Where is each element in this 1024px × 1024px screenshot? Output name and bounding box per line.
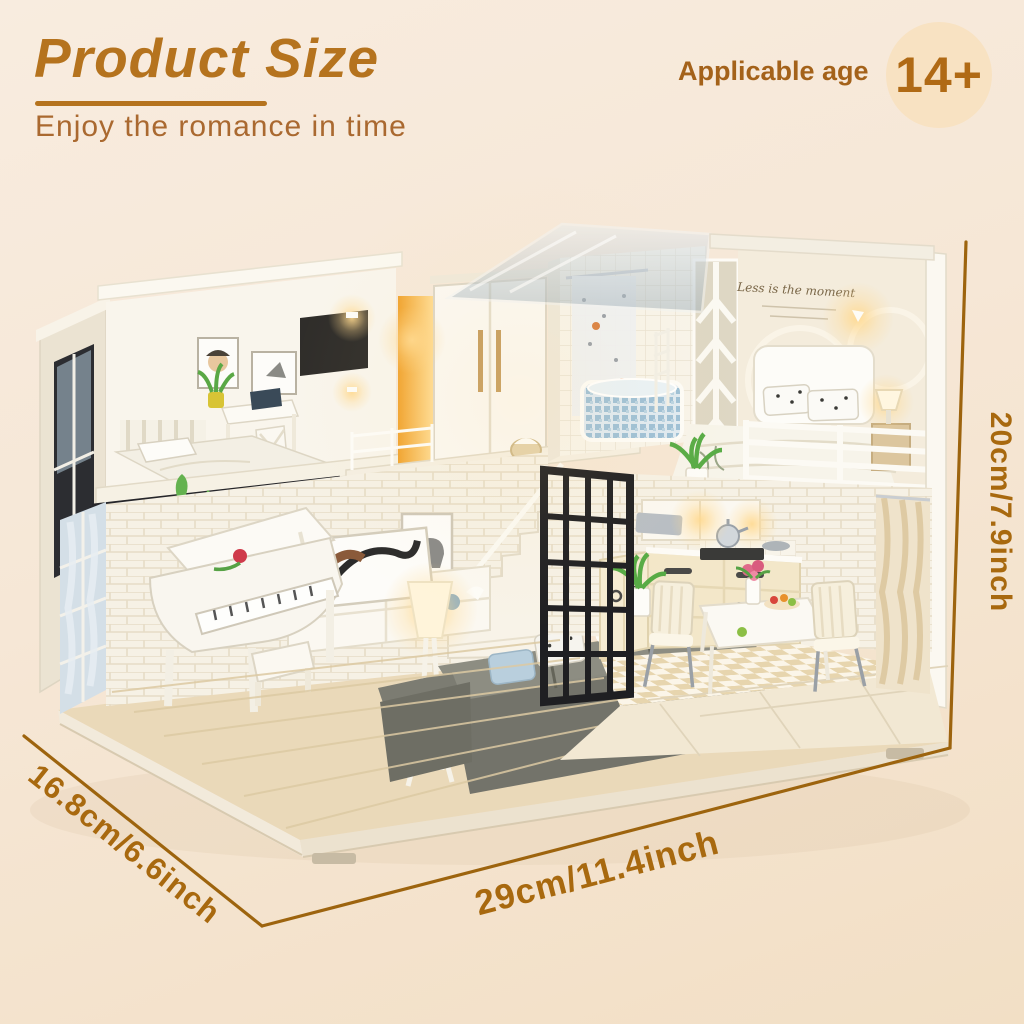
- page-title: Product Size: [34, 26, 379, 90]
- page-subtitle: Enjoy the romance in time: [35, 110, 407, 144]
- dollhouse-photo: Less is the moment: [0, 0, 1024, 1024]
- age-badge-value: 14+: [895, 46, 983, 104]
- height-dimension-line: [950, 242, 966, 748]
- height-dimension-label: 20cm/7.9inch: [984, 412, 1017, 612]
- title-underline: [35, 101, 267, 106]
- age-badge: 14+: [886, 22, 992, 128]
- applicable-age-label: Applicable age: [678, 56, 869, 87]
- warm-lights: [290, 170, 750, 630]
